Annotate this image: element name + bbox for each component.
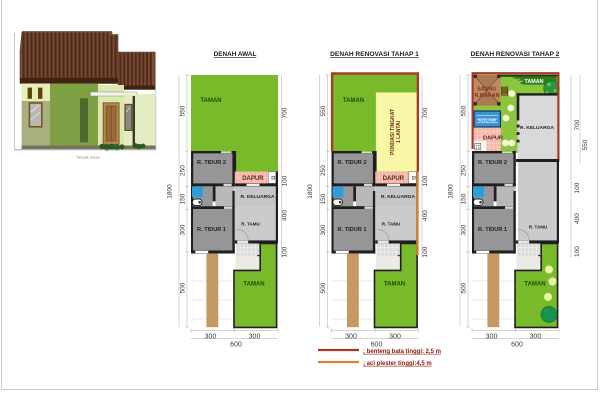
svg-text:400: 400 — [422, 210, 429, 221]
svg-text:300: 300 — [249, 334, 261, 341]
svg-text:R. KELUARGA: R. KELUARGA — [241, 194, 275, 200]
svg-text:300: 300 — [461, 224, 468, 235]
svg-text:300: 300 — [205, 334, 217, 341]
svg-text:300: 300 — [180, 224, 187, 235]
svg-text:250: 250 — [461, 165, 468, 176]
svg-text:TAMAN: TAMAN — [384, 282, 405, 288]
svg-text:R. KELUARGA: R. KELUARGA — [520, 125, 554, 131]
svg-text:R. TAMU: R. TAMU — [529, 225, 547, 230]
svg-text:1800: 1800 — [167, 184, 174, 199]
svg-text:400: 400 — [282, 210, 289, 221]
svg-text:500: 500 — [461, 282, 468, 293]
svg-text:100: 100 — [574, 246, 581, 257]
svg-text:600: 600 — [511, 342, 523, 349]
svg-text:500: 500 — [180, 282, 187, 293]
svg-text:TAMAN: TAMAN — [524, 282, 545, 288]
svg-text:SAUNG: SAUNG — [477, 87, 496, 93]
svg-text:100: 100 — [282, 246, 289, 257]
svg-text:R. TAMU: R. TAMU — [241, 222, 259, 227]
svg-text:Tampak depan: Tampak depan — [76, 156, 100, 160]
svg-text:DENAH RENOVASI TAHAP 1: DENAH RENOVASI TAHAP 1 — [330, 51, 419, 58]
svg-text:R. TIDUR 2: R. TIDUR 2 — [197, 160, 226, 166]
svg-text:600: 600 — [230, 342, 242, 349]
svg-text:150: 150 — [180, 193, 187, 204]
svg-text:DAPUR: DAPUR — [483, 136, 503, 142]
svg-text:100: 100 — [574, 182, 581, 193]
svg-text:700: 700 — [282, 107, 289, 118]
svg-text:R.MAKAN: R.MAKAN — [474, 93, 499, 99]
svg-text:250: 250 — [320, 165, 327, 176]
svg-text:1800: 1800 — [307, 184, 314, 199]
svg-text:TAMAN: TAMAN — [200, 98, 221, 104]
svg-text:DAPUR: DAPUR — [383, 176, 405, 182]
svg-text:400: 400 — [574, 213, 581, 224]
svg-text:550: 550 — [461, 105, 468, 116]
svg-text:250: 250 — [180, 165, 187, 176]
svg-text:150: 150 — [461, 193, 468, 204]
svg-text:TAMAN: TAMAN — [343, 98, 364, 104]
svg-text:R. TAMU: R. TAMU — [382, 222, 400, 227]
svg-text:700: 700 — [422, 107, 429, 118]
svg-text:150: 150 — [320, 193, 327, 204]
svg-text:R. TIDUR 1: R. TIDUR 1 — [197, 227, 226, 233]
svg-text:R. TIDUR 1: R. TIDUR 1 — [478, 227, 507, 233]
svg-text:R. TIDUR 2: R. TIDUR 2 — [338, 160, 367, 166]
svg-text:550: 550 — [180, 105, 187, 116]
svg-text:500: 500 — [320, 282, 327, 293]
svg-text:550: 550 — [582, 139, 589, 150]
svg-text:DENAH RENOVASI TAHAP 2: DENAH RENOVASI TAHAP 2 — [471, 51, 560, 58]
svg-text:R. TIDUR 2: R. TIDUR 2 — [478, 160, 507, 166]
svg-text:KOLAM: KOLAM — [478, 118, 496, 124]
svg-text:300: 300 — [389, 334, 401, 341]
svg-text:TAMAN: TAMAN — [524, 79, 543, 85]
svg-text:TAMAN: TAMAN — [243, 282, 264, 288]
svg-text:R. TIDUR 1: R. TIDUR 1 — [338, 227, 367, 233]
svg-text:600: 600 — [371, 342, 383, 349]
svg-text:300: 300 — [530, 334, 542, 341]
svg-text:R. KELUARGA: R. KELUARGA — [381, 194, 415, 200]
svg-text:300: 300 — [486, 334, 498, 341]
svg-text:DAPUR: DAPUR — [242, 176, 264, 182]
svg-text:1 LANTAI: 1 LANTAI — [396, 120, 402, 143]
svg-text:1800: 1800 — [448, 184, 455, 199]
svg-text:; aci plester tinggi:4,5 m: ; aci plester tinggi:4,5 m — [363, 361, 432, 367]
svg-text:300: 300 — [320, 224, 327, 235]
svg-text:100: 100 — [422, 246, 429, 257]
svg-text:550: 550 — [320, 105, 327, 116]
svg-text:100: 100 — [422, 175, 429, 186]
svg-text:; benteng bata tinggi: 2,5 m: ; benteng bata tinggi: 2,5 m — [363, 349, 441, 355]
svg-text:DENAH AWAL: DENAH AWAL — [214, 51, 257, 58]
svg-text:100: 100 — [282, 175, 289, 186]
svg-text:700: 700 — [574, 119, 581, 130]
svg-text:300: 300 — [345, 334, 357, 341]
